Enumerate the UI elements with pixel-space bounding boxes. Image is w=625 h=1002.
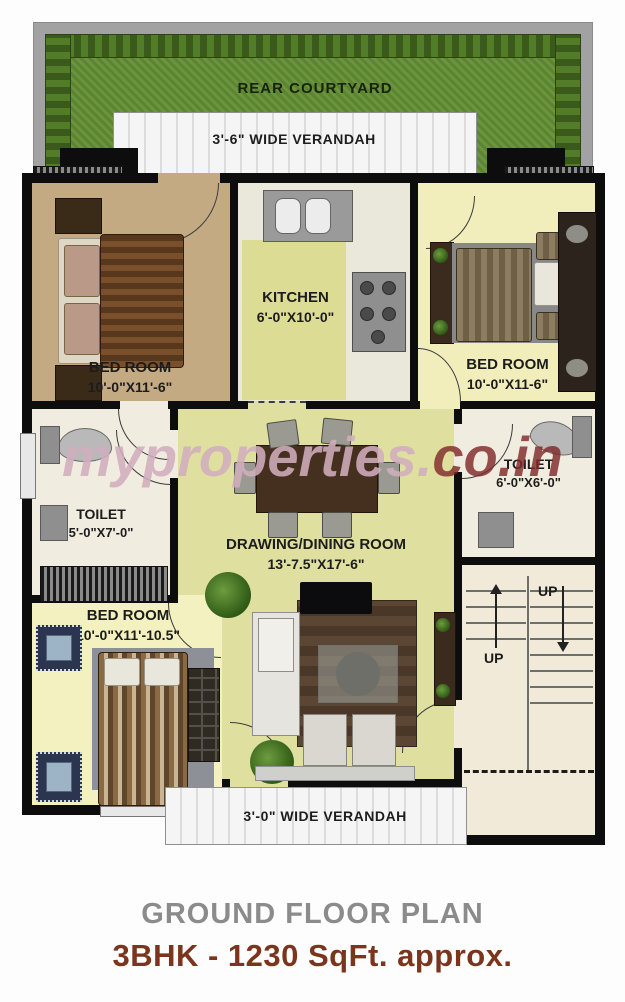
cooking-stove — [352, 272, 406, 352]
plant — [433, 248, 448, 263]
kitchen-label: KITCHEN 6'-0"X10'-0" — [238, 288, 353, 327]
plant — [436, 684, 450, 698]
watermark: myproperties.co.in — [0, 424, 625, 489]
double-bed — [456, 248, 532, 342]
bottom-verandah-label: 3'-0" WIDE VERANDAH — [185, 808, 465, 824]
wall-stairs-bottom — [454, 835, 605, 845]
wardrobe-hatch-band — [40, 566, 168, 602]
wash-basin — [478, 512, 514, 548]
door-opening-kitchen — [248, 401, 306, 411]
armchair — [352, 714, 396, 766]
entry-step — [255, 766, 415, 781]
stove-burner — [382, 307, 396, 321]
stairs-down-arrow — [562, 586, 564, 642]
double-bed — [100, 234, 184, 368]
watermark-part1: myproperties. — [62, 425, 432, 488]
stairs-down-arrowhead — [557, 642, 569, 652]
plan-title: GROUND FLOOR PLAN — [0, 898, 625, 931]
dresser — [188, 668, 220, 762]
toilet-left-label: TOILET 5'-0"X7'-0" — [34, 505, 168, 541]
wall-kitchen-bed2 — [410, 183, 418, 403]
sofa-seat — [258, 618, 294, 672]
stair-rail — [527, 720, 529, 770]
stove-burner — [360, 281, 374, 295]
top-verandah-label: 3'-6" WIDE VERANDAH — [113, 131, 475, 147]
tv-unit — [300, 582, 372, 614]
drawing-dining-label: DRAWING/DINING ROOM 13'-7.5"X17'-6" — [185, 535, 447, 574]
side-table-top — [46, 762, 72, 792]
bedroom-top-left-label: BED ROOM 10'-0"X11'-6" — [40, 358, 220, 397]
plant — [433, 320, 448, 335]
stairs-up-label-right: UP — [538, 583, 557, 599]
sink-basin — [275, 198, 301, 234]
stairs-dashed-line — [464, 770, 594, 773]
bed-pillow — [144, 658, 180, 686]
wall-mid-horizontal — [22, 401, 605, 409]
stairs-up-arrowhead — [490, 584, 502, 594]
wall-top — [22, 173, 605, 183]
door-opening-stairs — [454, 700, 462, 748]
door-opening-bed1-verandah — [158, 173, 220, 183]
door-opening-bed2-top — [418, 196, 426, 246]
coffee-table-top — [336, 652, 380, 696]
sink-basin — [305, 198, 331, 234]
rear-courtyard-label: REAR COURTYARD — [150, 80, 480, 97]
coffee-table — [318, 645, 398, 703]
wall-bed1-kitchen — [230, 183, 238, 403]
wall-toilet2-stairs — [462, 557, 597, 565]
side-table-decor — [36, 625, 82, 671]
side-table — [55, 198, 102, 234]
floor-plan-canvas: REAR COURTYARD 3'-6" WIDE VERANDAH — [0, 0, 625, 1002]
door-opening-bed2-bottom — [420, 401, 460, 409]
stair-divider — [527, 576, 529, 720]
plan-subtitle: 3BHK - 1230 SqFt. approx. — [0, 938, 625, 974]
side-table-decor — [36, 752, 82, 802]
armchair — [303, 714, 347, 766]
stove-burner — [382, 281, 396, 295]
wardrobe-knob — [566, 225, 588, 243]
stove-burner — [360, 307, 374, 321]
hedge-top — [45, 34, 581, 58]
watermark-part2: co.in — [432, 425, 563, 488]
bedroom-top-right-label: BED ROOM 10'-0"X11-6" — [420, 355, 595, 394]
door-opening-bed1-passage — [120, 401, 168, 409]
bed-pillow — [104, 658, 140, 686]
bed-pillow — [64, 245, 100, 297]
bed-pillow — [64, 303, 100, 355]
stove-burner — [371, 330, 385, 344]
plant — [436, 618, 450, 632]
stairs-up-label-left: UP — [484, 650, 503, 666]
stairs-up-arrow — [495, 592, 497, 648]
side-table-top — [46, 635, 72, 661]
